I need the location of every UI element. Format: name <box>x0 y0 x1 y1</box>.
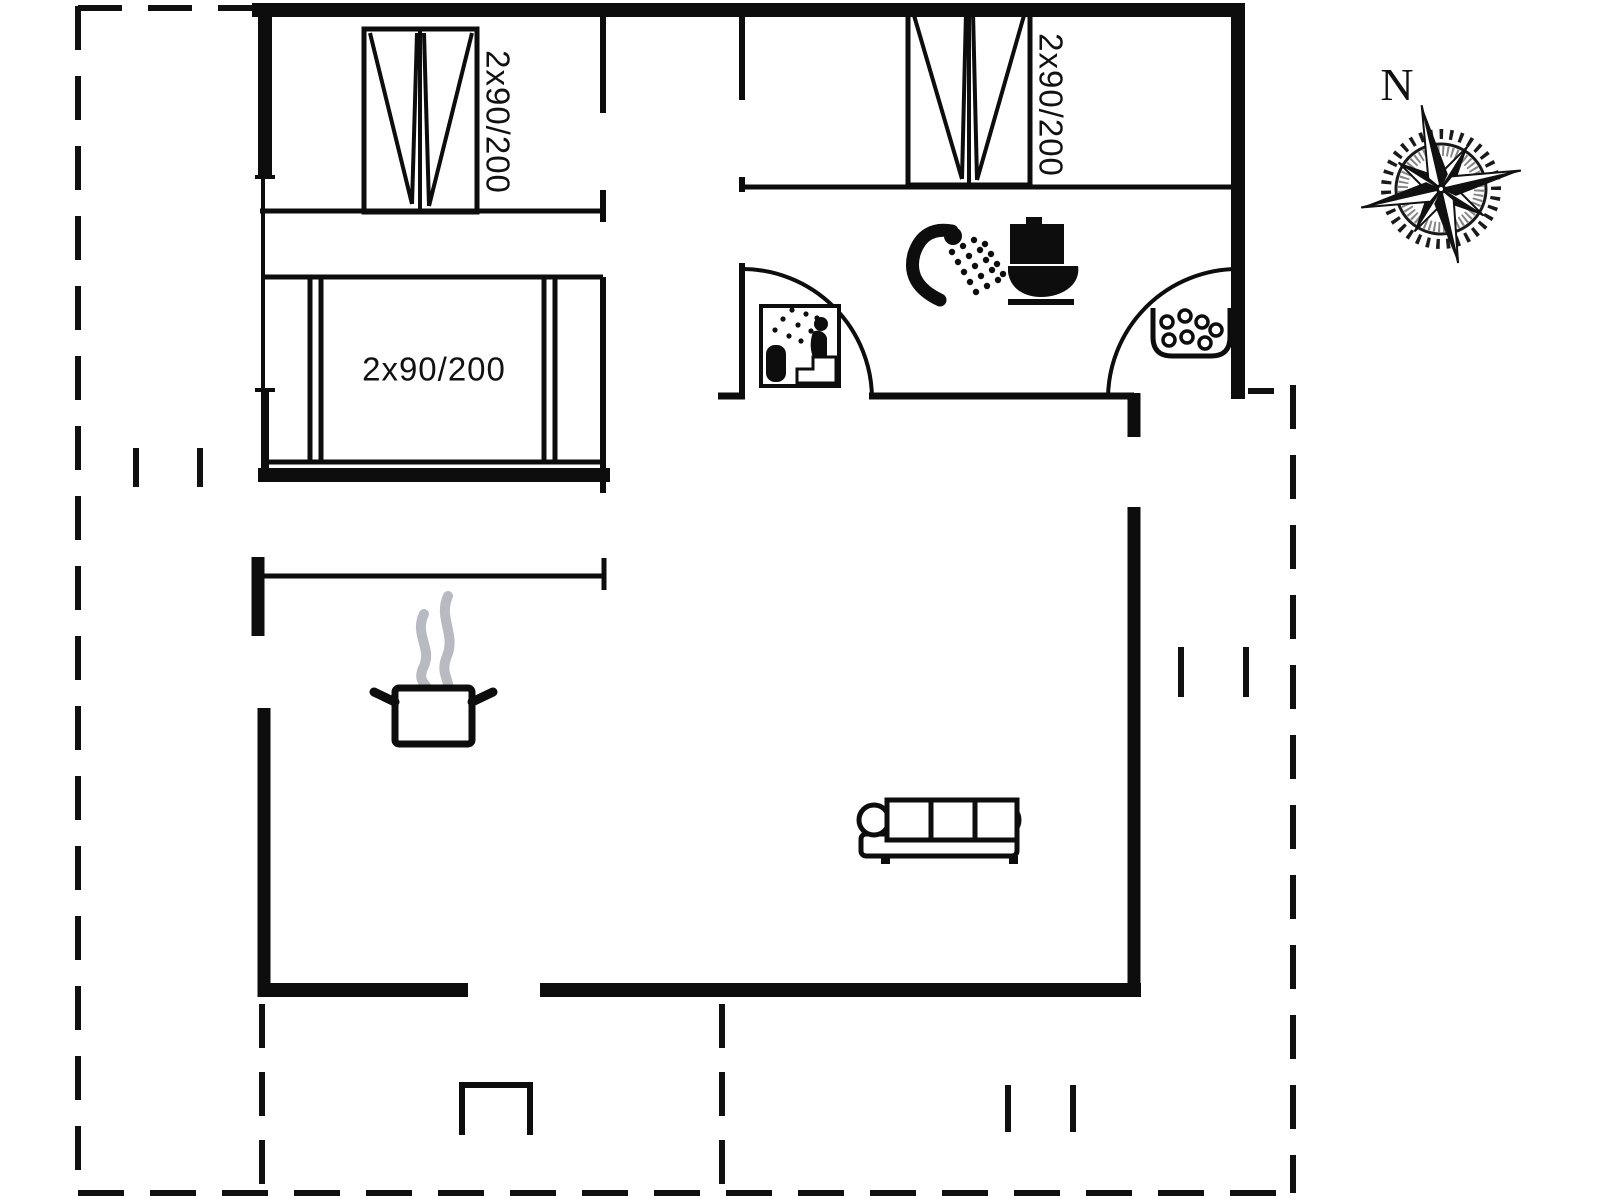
steam-wisp <box>421 614 426 686</box>
entrance-step <box>462 1085 530 1135</box>
whirlpool-icon <box>1153 308 1230 356</box>
floor-plan-drawing: 2x90/200 2x90/200 2x90/200 <box>0 0 1600 1200</box>
sauna-icon <box>761 306 839 386</box>
north-label: N <box>1380 59 1413 110</box>
steam-wisp <box>444 596 449 684</box>
compass-rose-icon: N <box>1342 59 1538 281</box>
bed-label-mid-left: 2x90/200 <box>362 351 506 388</box>
sofa-icon <box>859 800 1019 864</box>
bed-label-top-left: 2x90/200 <box>479 50 516 194</box>
terrace-opening-markers <box>136 448 1246 1132</box>
bed-top-left <box>364 29 477 212</box>
floor-plan: 2x90/200 2x90/200 2x90/200 <box>0 0 1600 1200</box>
cooking-pot-icon <box>374 596 493 744</box>
bed-label-top-right: 2x90/200 <box>1032 33 1069 177</box>
toilet-icon <box>1008 217 1078 305</box>
shower-icon <box>912 227 1006 300</box>
bed-top-right <box>908 8 1030 185</box>
